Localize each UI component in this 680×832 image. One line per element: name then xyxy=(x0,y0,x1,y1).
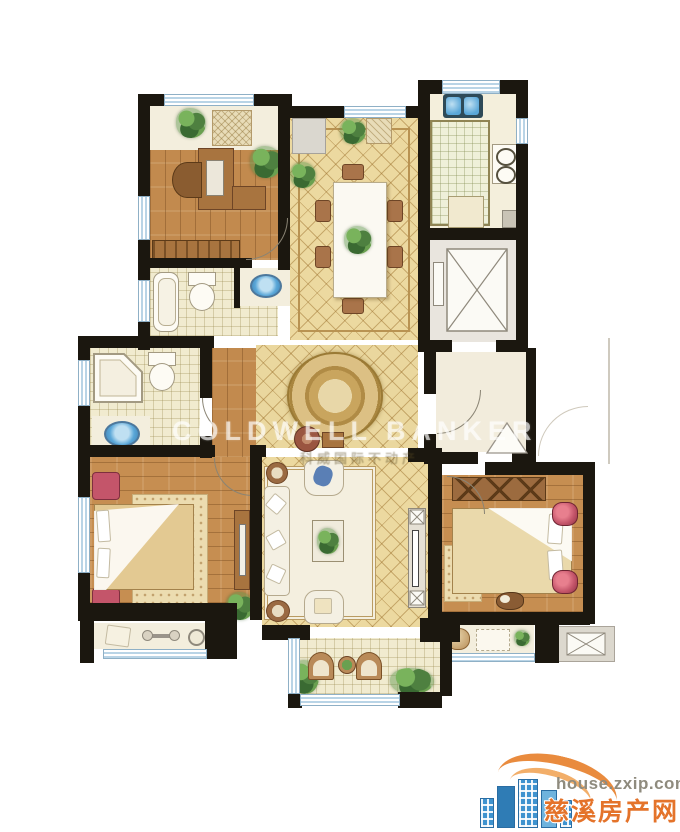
window-railing xyxy=(103,649,207,659)
rattan-mat xyxy=(212,110,252,146)
patio-chair-seat xyxy=(361,660,377,676)
toilet-icon xyxy=(149,363,175,391)
utility-shaft xyxy=(292,118,326,154)
console-cap-icon xyxy=(409,509,425,525)
window xyxy=(138,196,150,240)
wall xyxy=(428,452,442,620)
dog-patch xyxy=(500,595,510,603)
wall xyxy=(80,621,94,663)
ac-unit-crossed-box-icon xyxy=(566,632,606,656)
wall xyxy=(535,623,559,663)
window xyxy=(78,497,90,573)
wall xyxy=(516,228,528,352)
kitchen-island xyxy=(448,196,484,228)
wall xyxy=(516,80,528,240)
window xyxy=(442,80,500,94)
dining-chair xyxy=(342,164,364,180)
logo-url-text: house.zxip.com xyxy=(556,774,680,794)
sink-basin-icon xyxy=(464,97,479,115)
plant-icon xyxy=(290,162,316,188)
wall xyxy=(138,258,252,268)
table-centerpiece-plant xyxy=(344,226,372,254)
rattan-mat xyxy=(366,118,392,144)
window-railing xyxy=(288,638,300,694)
window xyxy=(138,280,150,322)
wall xyxy=(398,692,442,708)
plant-icon xyxy=(390,668,434,694)
corner-bathtub xyxy=(92,352,144,404)
wall xyxy=(205,621,237,659)
wall xyxy=(440,640,452,696)
wheel-icon xyxy=(188,629,205,646)
study-monitor xyxy=(206,160,224,196)
wall xyxy=(278,94,290,270)
pillow xyxy=(96,548,111,579)
wall xyxy=(424,352,436,394)
sink-icon xyxy=(104,421,140,447)
elevator-panel xyxy=(433,262,444,306)
window xyxy=(78,360,90,406)
dumbbell-icon xyxy=(142,630,153,641)
wall xyxy=(200,348,212,398)
study-chair xyxy=(172,162,202,198)
watermark-brand-cn: 科威国际不动产 xyxy=(300,448,419,467)
window xyxy=(516,118,528,144)
city-building-icon xyxy=(480,798,494,828)
side-table-lamp xyxy=(266,462,288,484)
wall xyxy=(418,80,430,352)
window-railing xyxy=(300,694,400,706)
wall xyxy=(83,336,214,348)
tv-icon xyxy=(412,530,419,587)
dining-chair xyxy=(387,200,403,222)
wall xyxy=(496,340,528,352)
pillow xyxy=(96,510,111,543)
dumbbell-icon xyxy=(169,630,180,641)
patio-table xyxy=(338,656,356,674)
window-railing xyxy=(447,653,535,662)
window xyxy=(164,94,254,106)
floor-plan-image: COLDWELL BANKER 科威国际不动产 house.zxip.com 慈… xyxy=(0,0,680,832)
side-table-lamp xyxy=(266,600,290,622)
coffee-table-plant xyxy=(317,528,339,554)
burner-icon xyxy=(496,166,516,184)
wall xyxy=(430,612,590,625)
patio-chair-seat xyxy=(313,660,329,676)
dining-chair xyxy=(315,200,331,222)
watermark-brand: COLDWELL BANKER xyxy=(172,416,537,447)
wall xyxy=(485,462,595,475)
wall xyxy=(583,462,595,624)
dining-chair xyxy=(342,298,364,314)
site-logo: house.zxip.com 慈溪房产网 xyxy=(478,754,680,832)
wall xyxy=(80,603,237,621)
cushion xyxy=(314,598,332,614)
wall xyxy=(288,628,300,638)
wall xyxy=(424,228,528,240)
wall xyxy=(424,340,452,352)
floor-cushion xyxy=(105,624,132,647)
wall xyxy=(262,625,310,640)
logo-site-name: 慈溪房产网 xyxy=(544,792,679,828)
dining-chair xyxy=(387,246,403,268)
console-cap-icon xyxy=(409,590,425,606)
toilet-icon xyxy=(189,283,215,311)
plant-icon xyxy=(340,118,366,144)
elevator-shaft-icon xyxy=(446,248,508,332)
wall xyxy=(250,457,262,620)
flower-pot xyxy=(552,502,578,526)
tv-icon xyxy=(239,524,246,576)
window xyxy=(344,106,406,118)
small-rug xyxy=(476,629,510,651)
burner-icon xyxy=(496,148,516,166)
plant-icon xyxy=(514,630,530,646)
wall xyxy=(436,452,478,464)
dining-chair xyxy=(315,246,331,268)
flower-pot xyxy=(552,570,578,594)
sink-icon xyxy=(250,274,282,298)
plant-icon xyxy=(176,108,206,138)
sink-basin-icon xyxy=(446,97,461,115)
study-desk-return xyxy=(232,186,266,210)
nightstand xyxy=(92,472,120,500)
wall xyxy=(234,268,240,308)
bathtub-inner xyxy=(158,278,176,326)
